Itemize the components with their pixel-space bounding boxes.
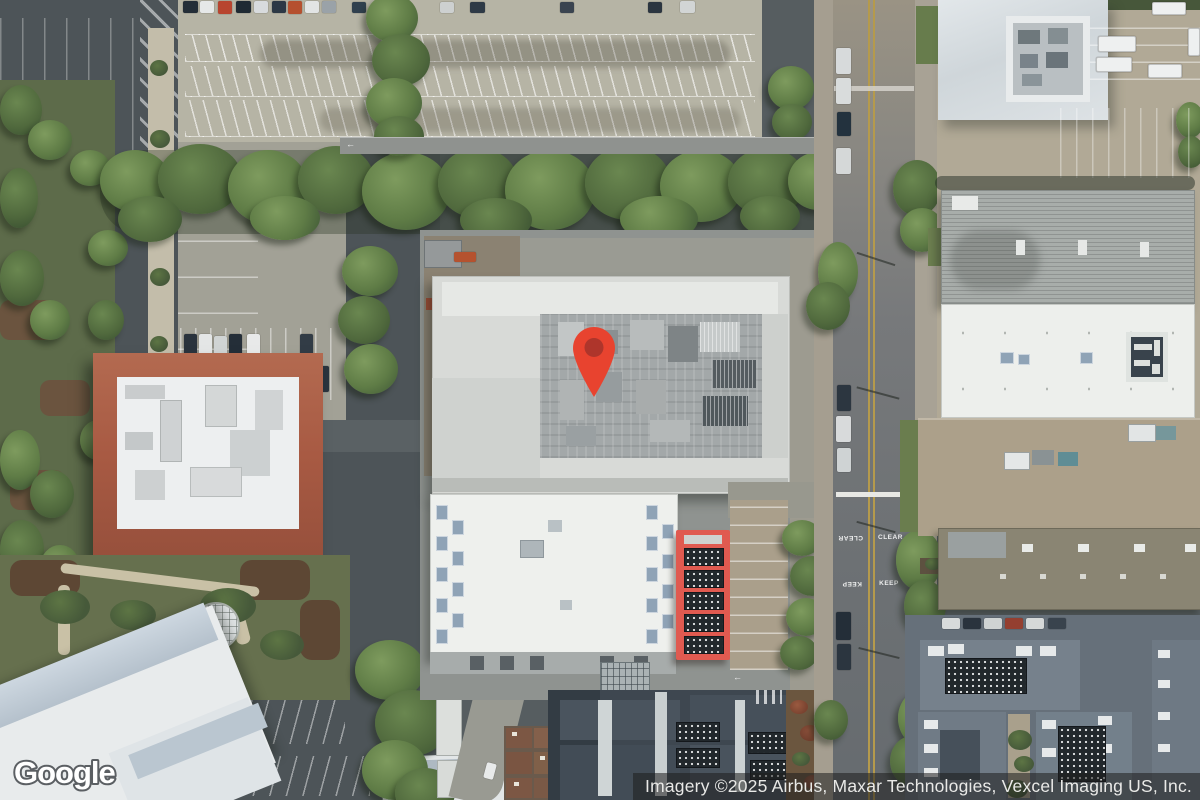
rooftop-unit xyxy=(255,390,283,430)
equipment-bay xyxy=(684,570,724,588)
rooftop-unit xyxy=(712,360,756,388)
rooftop-vent xyxy=(1078,240,1087,255)
road-marking-text: KEEP xyxy=(878,580,900,587)
tree xyxy=(88,230,128,266)
google-logo-text: Google xyxy=(14,755,116,790)
tree xyxy=(150,336,168,352)
tree xyxy=(250,196,320,240)
dormer xyxy=(1042,720,1056,729)
dormer xyxy=(1016,646,1032,656)
google-logo[interactable]: Google xyxy=(10,750,170,794)
car xyxy=(322,1,336,13)
grass xyxy=(900,420,918,532)
rooftop-unit xyxy=(540,756,545,760)
mulch xyxy=(40,380,90,416)
skylight xyxy=(646,567,658,582)
truck xyxy=(1188,28,1200,56)
rooftop-unit xyxy=(190,467,242,497)
car xyxy=(837,448,851,472)
shrub xyxy=(1008,730,1032,750)
rooftop-unit xyxy=(630,320,664,350)
car xyxy=(352,2,366,13)
dumpster xyxy=(1128,424,1156,442)
crosswalk xyxy=(756,690,782,704)
rooftop-unit xyxy=(1134,344,1152,350)
tree xyxy=(344,344,398,394)
car xyxy=(836,78,851,104)
tree xyxy=(88,300,124,340)
rooftop-vent xyxy=(1040,574,1046,579)
center-line xyxy=(868,0,875,800)
dumpster xyxy=(1004,452,1030,470)
tree xyxy=(28,120,72,160)
rooftop-well xyxy=(1126,332,1168,382)
solar-panels xyxy=(945,658,1027,694)
tree xyxy=(362,152,450,230)
tree xyxy=(0,168,38,228)
rooftop-vent xyxy=(1078,544,1089,552)
road-marking-text: CLEAR xyxy=(878,534,900,541)
shrub xyxy=(1014,756,1034,772)
rooftop-unit xyxy=(1020,54,1038,68)
car xyxy=(1026,618,1044,629)
dormer xyxy=(948,644,964,654)
rooftop-vent xyxy=(1022,544,1033,552)
rooftop-unit xyxy=(636,380,666,414)
tree xyxy=(30,470,74,518)
skylight xyxy=(662,524,674,539)
rooftop-unit xyxy=(520,540,544,558)
tree xyxy=(806,282,850,330)
roof-patch xyxy=(952,196,978,210)
dock-door xyxy=(470,656,484,670)
dormer xyxy=(924,720,938,729)
truck xyxy=(1096,57,1132,72)
truck xyxy=(454,252,476,262)
road-arrow: ← xyxy=(733,672,742,682)
building-roof xyxy=(506,778,532,798)
red-structure-top xyxy=(684,535,722,544)
solar-panels xyxy=(676,748,720,768)
car xyxy=(1005,618,1023,629)
skylight xyxy=(452,613,464,628)
skylight xyxy=(646,629,658,644)
car xyxy=(984,618,1002,629)
rooftop-vent xyxy=(1134,544,1145,552)
skylight xyxy=(1080,352,1093,364)
skylight xyxy=(436,629,448,644)
tree xyxy=(772,104,812,140)
rooftop-vent xyxy=(1185,544,1196,552)
tree xyxy=(150,268,170,286)
roof-stain xyxy=(950,230,1040,290)
rooftop-unit xyxy=(948,532,1006,558)
rooftop-unit xyxy=(1018,30,1040,44)
dormer xyxy=(1158,744,1170,752)
skylight xyxy=(452,551,464,566)
car xyxy=(837,385,851,411)
truck xyxy=(1152,2,1186,15)
rooftop-unit xyxy=(1154,340,1160,356)
parking-stripes xyxy=(1060,108,1200,178)
dormer xyxy=(1042,748,1056,757)
car xyxy=(183,1,198,13)
rooftop-unit xyxy=(1022,74,1042,86)
rooftop-vent xyxy=(1000,574,1006,579)
car xyxy=(272,1,286,13)
car xyxy=(942,618,960,629)
building-roof xyxy=(432,378,540,492)
map-canvas[interactable]: ← xyxy=(0,0,1200,800)
tree xyxy=(118,196,182,242)
dormer xyxy=(1040,646,1056,656)
solar-panels xyxy=(676,722,720,742)
car xyxy=(440,2,454,13)
skylight xyxy=(662,614,674,629)
tree xyxy=(150,130,170,148)
parking-stripes xyxy=(185,66,755,97)
car xyxy=(963,618,981,629)
building-roof xyxy=(442,282,778,316)
car xyxy=(254,1,268,13)
rooftop-unit xyxy=(668,326,698,362)
car xyxy=(305,1,319,13)
dormer xyxy=(1158,650,1170,658)
dormer xyxy=(1158,712,1170,720)
stop-bar xyxy=(836,492,900,497)
car xyxy=(470,2,485,13)
car xyxy=(680,1,695,13)
equipment-bay xyxy=(684,636,724,654)
rooftop-unit xyxy=(548,520,562,532)
shrub xyxy=(260,630,304,660)
car xyxy=(837,644,851,670)
rooftop-unit xyxy=(560,600,572,610)
rooftop-unit xyxy=(566,426,596,446)
rooftop-unit xyxy=(160,400,182,462)
rooftop-unit xyxy=(702,396,748,426)
carport xyxy=(436,696,462,756)
rooftop-unit xyxy=(205,385,237,427)
location-pin[interactable] xyxy=(572,326,616,398)
equipment-bay xyxy=(684,548,724,566)
rooftop-vent xyxy=(1160,574,1166,579)
tree xyxy=(338,296,390,344)
shrub xyxy=(40,590,90,624)
car xyxy=(836,48,851,74)
dormer xyxy=(928,646,944,656)
rooftop-unit xyxy=(650,420,690,442)
skylight xyxy=(436,567,448,582)
shrub xyxy=(792,752,810,766)
tree xyxy=(150,60,168,76)
car xyxy=(836,148,851,174)
road-marking-text: CLEAR xyxy=(841,534,863,541)
road-arrow: ← xyxy=(346,139,355,149)
skylight xyxy=(646,505,658,520)
car xyxy=(288,1,302,14)
skylight xyxy=(1000,352,1014,364)
truck xyxy=(1148,64,1182,78)
mulch xyxy=(300,600,340,660)
skylight xyxy=(646,536,658,551)
tree xyxy=(0,250,44,306)
car xyxy=(200,1,214,13)
skylight xyxy=(646,598,658,613)
truck xyxy=(1098,36,1136,52)
building-roof xyxy=(762,314,788,458)
street xyxy=(340,137,834,154)
skylight xyxy=(452,582,464,597)
dumpster xyxy=(1156,426,1176,440)
car xyxy=(648,2,662,13)
rooftop-unit xyxy=(1152,364,1160,374)
skylight xyxy=(436,536,448,551)
dock-door xyxy=(500,656,514,670)
car xyxy=(218,1,232,14)
rooftop-vent xyxy=(1120,574,1126,579)
building-roof xyxy=(506,752,532,774)
skylight xyxy=(662,584,674,599)
skylight-strip xyxy=(598,700,612,796)
rooftop-vent xyxy=(1140,242,1149,257)
dumpster xyxy=(1058,452,1078,466)
dormer xyxy=(924,744,938,753)
rooftop-vent xyxy=(1016,240,1025,255)
rooftop-unit xyxy=(514,782,519,786)
rooftop-unit xyxy=(135,470,165,500)
dock-door xyxy=(530,656,544,670)
rooftop-vent xyxy=(1080,574,1086,579)
rooftop-unit xyxy=(1046,52,1068,68)
equipment-bay xyxy=(684,614,724,632)
skylight xyxy=(436,598,448,613)
car xyxy=(837,112,851,136)
dormer xyxy=(1098,716,1112,725)
car xyxy=(560,2,574,13)
car xyxy=(836,612,851,640)
rooftop-unit xyxy=(1048,28,1068,44)
car xyxy=(236,1,251,13)
tire-smudge xyxy=(260,40,730,68)
rooftop-unit xyxy=(700,322,740,352)
tree xyxy=(780,636,818,670)
tree xyxy=(30,300,70,340)
tree xyxy=(814,700,848,740)
rooftop-unit xyxy=(125,432,153,450)
car xyxy=(1048,618,1066,629)
equipment-bay xyxy=(684,592,724,610)
skylight xyxy=(436,505,448,520)
parking-stripes xyxy=(730,500,788,670)
skylight xyxy=(1018,354,1030,365)
car xyxy=(836,416,851,442)
pin-inner-dot xyxy=(585,338,604,357)
building-roof xyxy=(506,728,532,748)
skylight xyxy=(662,554,674,569)
rooftop-unit xyxy=(512,732,517,736)
dumpster xyxy=(1032,450,1054,465)
rooftop-unit xyxy=(1134,360,1150,366)
dormer xyxy=(1158,680,1170,688)
imagery-attribution: Imagery ©2025 Airbus, Maxar Technologies… xyxy=(633,773,1200,800)
tree-shadow xyxy=(935,176,1195,190)
sidewalk xyxy=(814,0,833,800)
tree xyxy=(342,246,398,296)
road-marking-text: KEEP xyxy=(841,580,863,587)
rooftop-unit xyxy=(125,385,165,399)
skylight xyxy=(452,520,464,535)
building-roof xyxy=(430,494,678,658)
shrub xyxy=(790,700,808,714)
map-view: ← xyxy=(0,0,1200,800)
